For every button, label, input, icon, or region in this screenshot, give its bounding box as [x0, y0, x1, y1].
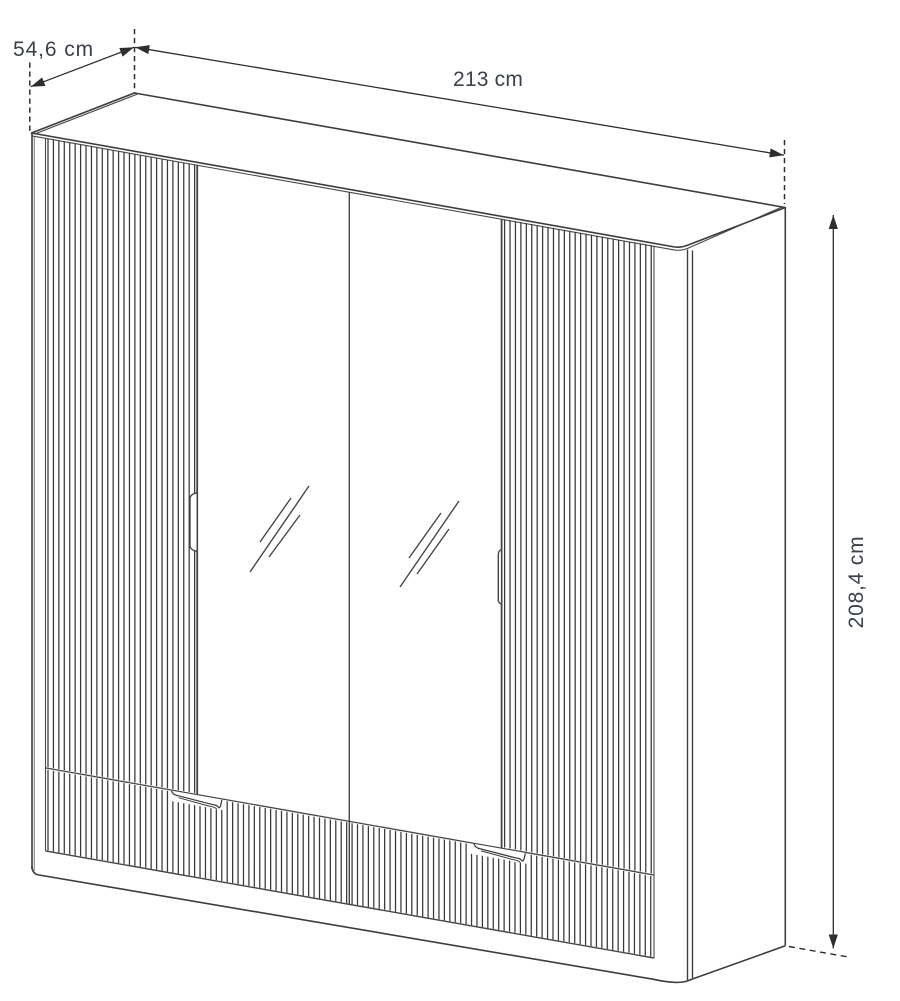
svg-text:54,6 cm: 54,6 cm: [13, 38, 94, 61]
svg-text:208,4 cm: 208,4 cm: [845, 536, 868, 629]
svg-text:213 cm: 213 cm: [453, 68, 523, 91]
